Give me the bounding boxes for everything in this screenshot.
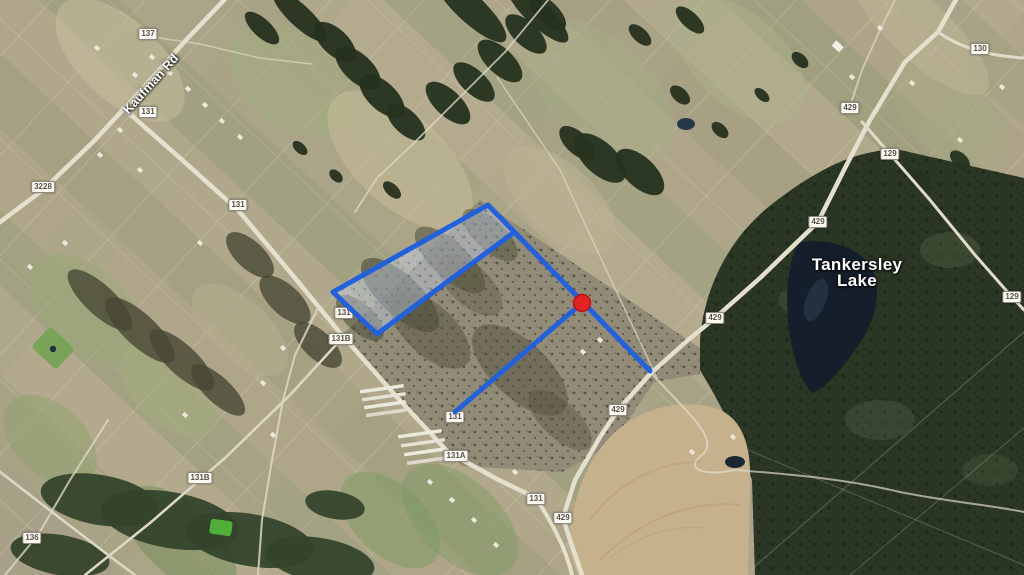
- satellite-map-view[interactable]: Kaufman Rd Tankersley Lake 1371313228131…: [0, 0, 1024, 575]
- parcel-boundary-line: [488, 205, 650, 371]
- parcel-boundary-line: [455, 303, 582, 412]
- parcel-boundary-overlay: [0, 0, 1024, 575]
- property-marker[interactable]: [574, 295, 591, 312]
